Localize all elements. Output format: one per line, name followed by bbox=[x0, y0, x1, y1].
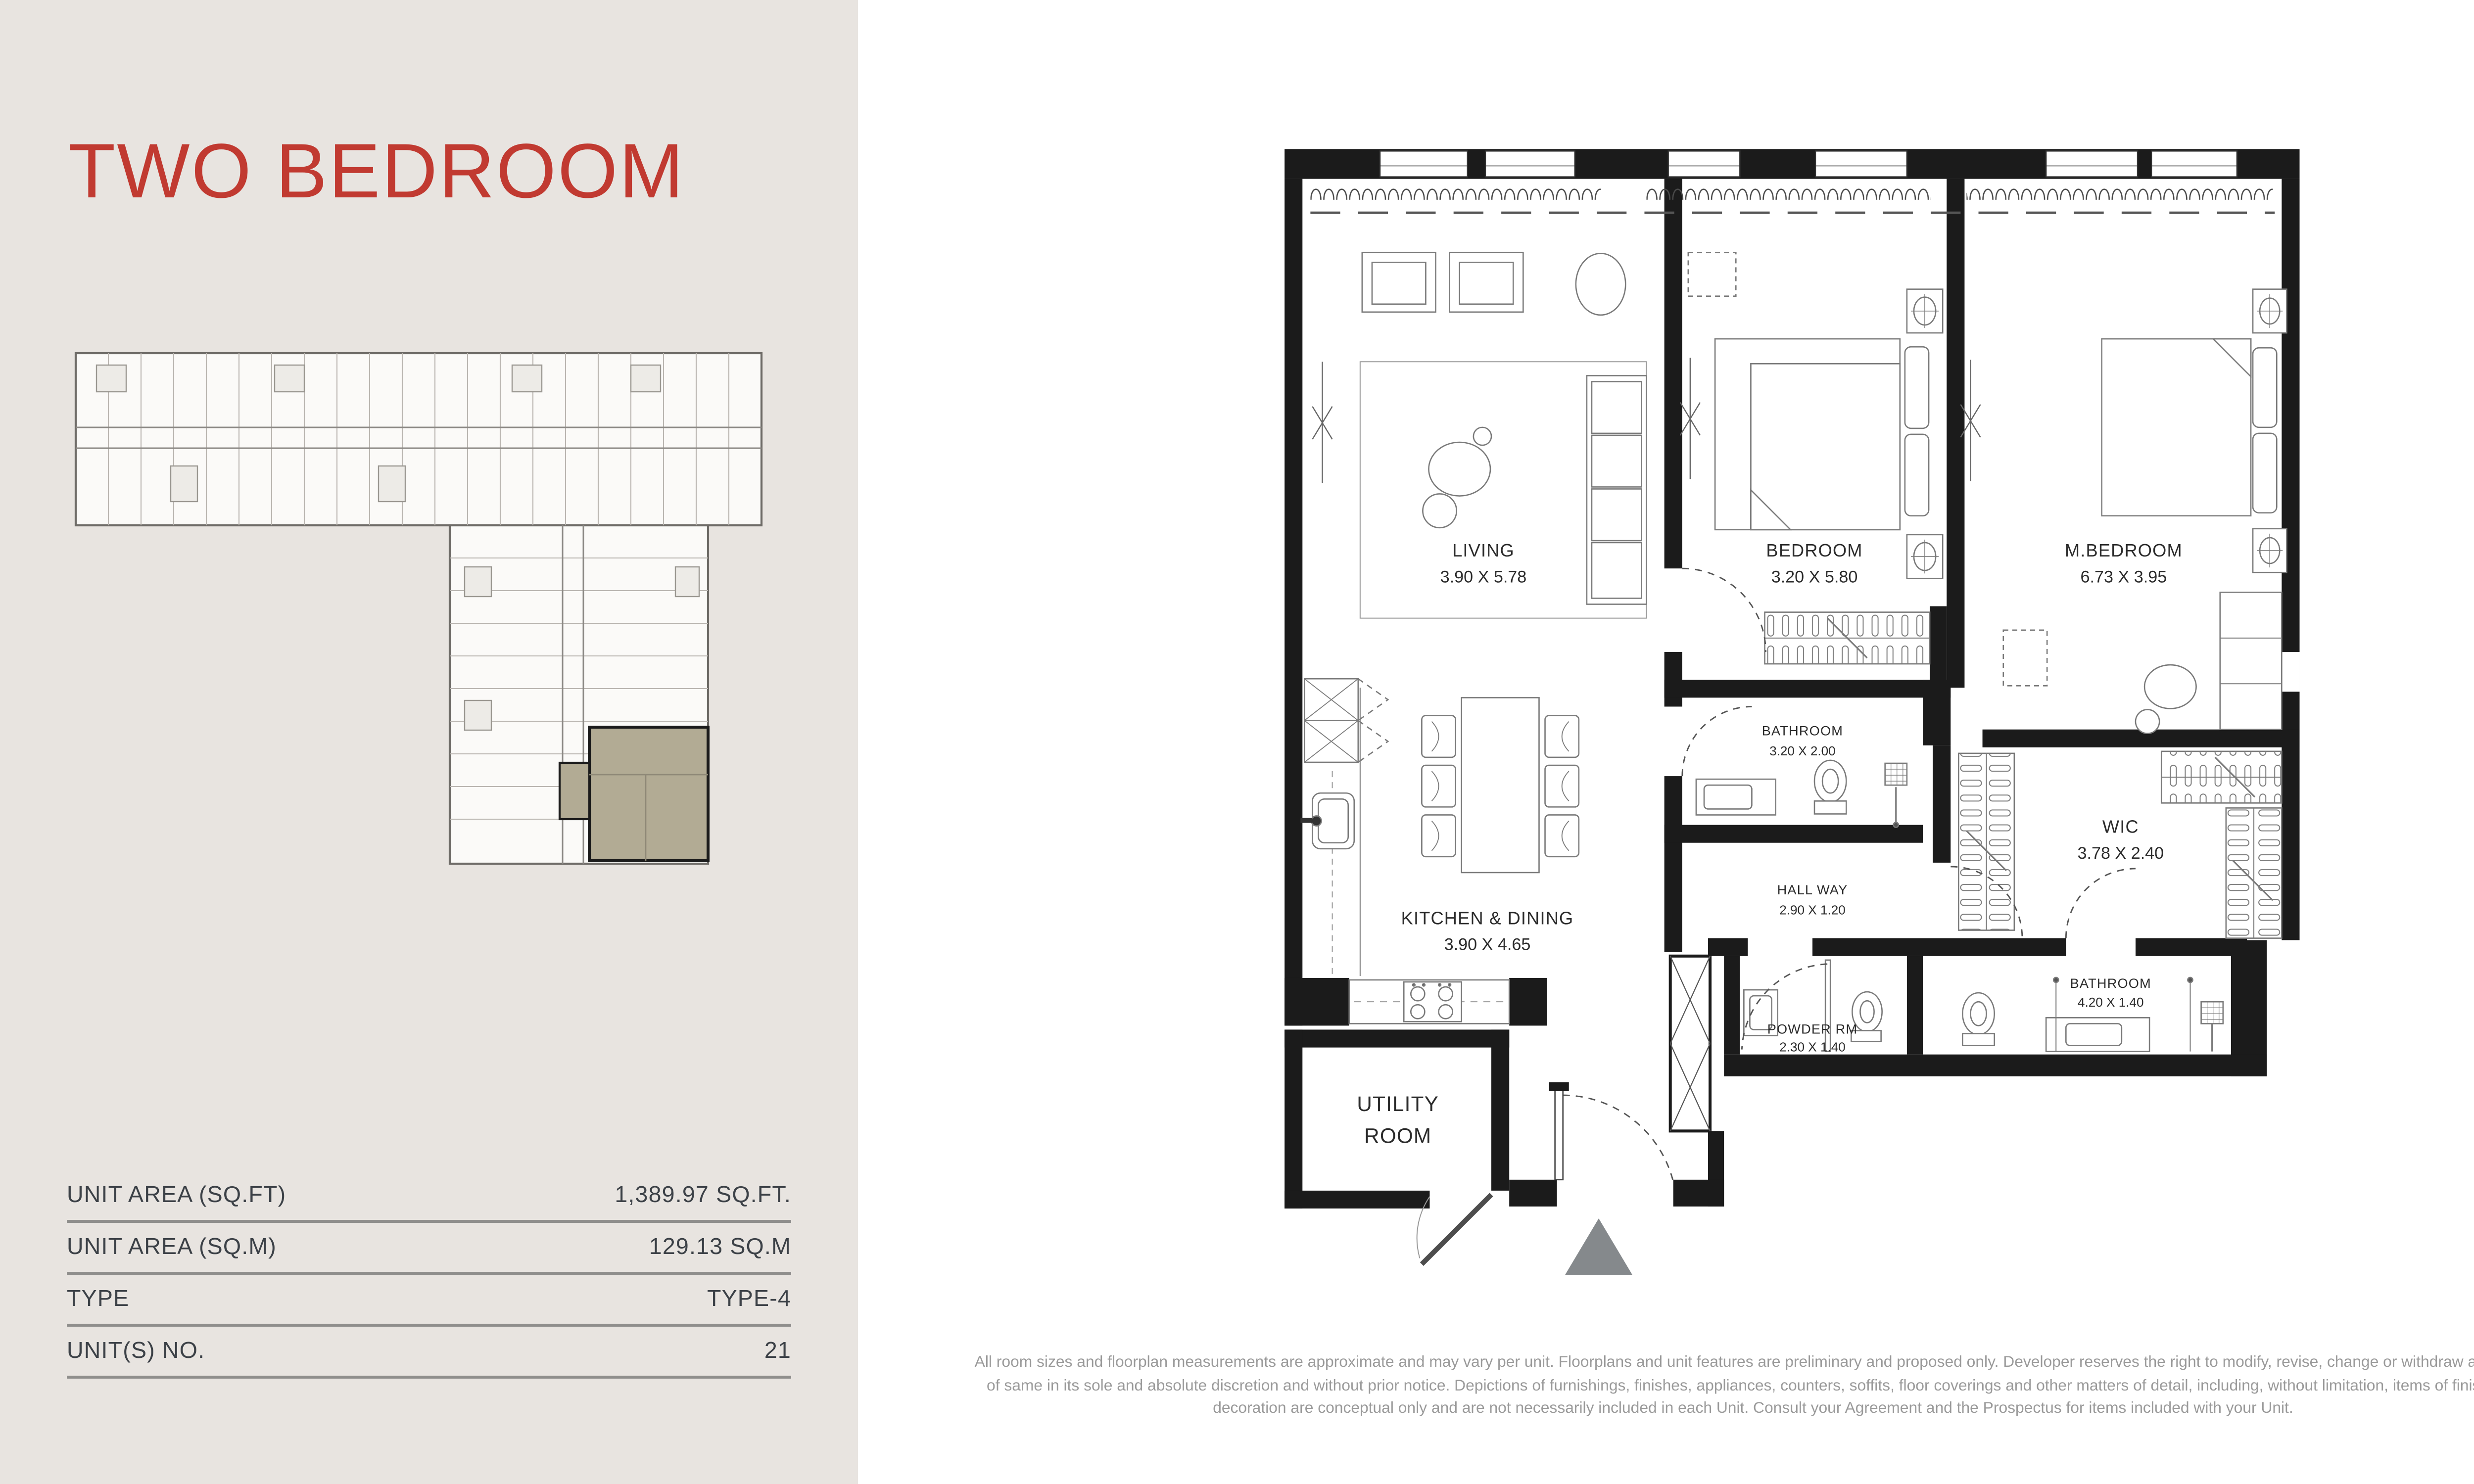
room-label-master-bedroom: M.BEDROOM bbox=[2065, 540, 2183, 560]
room-dims-bathroom2: 4.20 X 1.40 bbox=[2078, 995, 2144, 1010]
shower-head-icon bbox=[2201, 1002, 2223, 1023]
room-dims-wic: 3.78 X 2.40 bbox=[2078, 844, 2164, 863]
curtain-coil-symbol bbox=[1310, 181, 1601, 203]
room-dims-powder-room: 2.30 X 1.40 bbox=[1779, 1040, 1846, 1055]
page-viewport: TWO BEDROOM bbox=[0, 0, 2474, 1484]
room-dims-bathroom1: 3.20 X 2.00 bbox=[1769, 743, 1836, 758]
room-label-utility-line1: UTILITY bbox=[1357, 1092, 1439, 1115]
detail-value: 1,389.97 SQ.FT. bbox=[615, 1182, 791, 1209]
detail-value: 21 bbox=[764, 1338, 791, 1365]
master-bedroom-furniture bbox=[2003, 289, 2287, 734]
curtain-coil-symbol bbox=[1966, 181, 2273, 203]
shower-head-icon bbox=[1885, 763, 1907, 785]
room-label-kitchen-dining: KITCHEN & DINING bbox=[1401, 908, 1574, 928]
service-shaft bbox=[1670, 956, 1710, 1131]
disclaimer-line: decoration are conceptual only and are n… bbox=[891, 1398, 2474, 1422]
table-row: UNIT AREA (SQ.FT) 1,389.97 SQ.FT. bbox=[67, 1171, 791, 1223]
detail-value: 129.13 SQ.M bbox=[649, 1234, 791, 1261]
bedroom-furniture bbox=[1688, 252, 1943, 664]
entry-door bbox=[1549, 1082, 1569, 1180]
room-label-powder-room: POWDER RM bbox=[1767, 1021, 1858, 1036]
table-row: UNIT AREA (SQ.M) 129.13 SQ.M bbox=[67, 1223, 791, 1275]
room-dims-hallway: 2.90 X 1.20 bbox=[1779, 902, 1846, 917]
legal-disclaimer: All room sizes and floorplan measurement… bbox=[891, 1352, 2474, 1421]
left-info-panel: TWO BEDROOM bbox=[0, 0, 858, 1484]
detail-label: UNIT AREA (SQ.FT) bbox=[67, 1182, 286, 1209]
floor-plan-drawing: LIVING 3.90 X 5.78 BEDROOM 3.20 X 5.80 M… bbox=[1271, 135, 2354, 1288]
curtain-coil-symbol bbox=[1646, 181, 1931, 203]
table-row: TYPE TYPE-4 bbox=[67, 1275, 791, 1327]
detail-label: UNIT AREA (SQ.M) bbox=[67, 1234, 277, 1261]
brochure-page: TWO BEDROOM bbox=[0, 0, 2474, 1484]
table-row: UNIT(S) NO. 21 bbox=[67, 1327, 791, 1379]
room-dims-kitchen-dining: 3.90 X 4.65 bbox=[1444, 935, 1531, 954]
detail-value: TYPE-4 bbox=[707, 1286, 791, 1313]
room-label-bedroom: BEDROOM bbox=[1766, 540, 1862, 560]
kitchen-dining-furniture bbox=[1300, 679, 1579, 1023]
unit-details-table: UNIT AREA (SQ.FT) 1,389.97 SQ.FT. UNIT A… bbox=[67, 1171, 791, 1379]
room-label-hallway: HALL WAY bbox=[1777, 882, 1848, 897]
disclaimer-line: All room sizes and floorplan measurement… bbox=[891, 1352, 2474, 1375]
page-title: TWO BEDROOM bbox=[68, 128, 685, 217]
powder-room-fixtures bbox=[1742, 960, 1882, 1052]
entry-marker-triangle bbox=[1565, 1218, 1633, 1275]
room-label-bathroom1: BATHROOM bbox=[1762, 723, 1843, 739]
room-dims-master-bedroom: 6.73 X 3.95 bbox=[2081, 567, 2167, 586]
disclaimer-line: of same in its sole and absolute discret… bbox=[891, 1375, 2474, 1398]
room-label-living: LIVING bbox=[1452, 540, 1515, 560]
building-key-plan bbox=[67, 329, 791, 938]
room-dims-living: 3.90 X 5.78 bbox=[1440, 567, 1527, 586]
room-label-bathroom2: BATHROOM bbox=[2070, 975, 2151, 991]
detail-label: UNIT(S) NO. bbox=[67, 1338, 205, 1365]
living-room-furniture bbox=[1360, 252, 1647, 618]
bathroom1-fixtures bbox=[1696, 760, 1907, 828]
detail-label: TYPE bbox=[67, 1286, 129, 1313]
room-label-utility-line2: ROOM bbox=[1364, 1124, 1431, 1147]
wall-notch bbox=[2282, 652, 2299, 692]
room-dims-bedroom: 3.20 X 5.80 bbox=[1771, 567, 1858, 586]
room-label-wic: WIC bbox=[2102, 817, 2139, 837]
unit-floor-plan: LIVING 3.90 X 5.78 BEDROOM 3.20 X 5.80 M… bbox=[1271, 135, 2354, 1296]
